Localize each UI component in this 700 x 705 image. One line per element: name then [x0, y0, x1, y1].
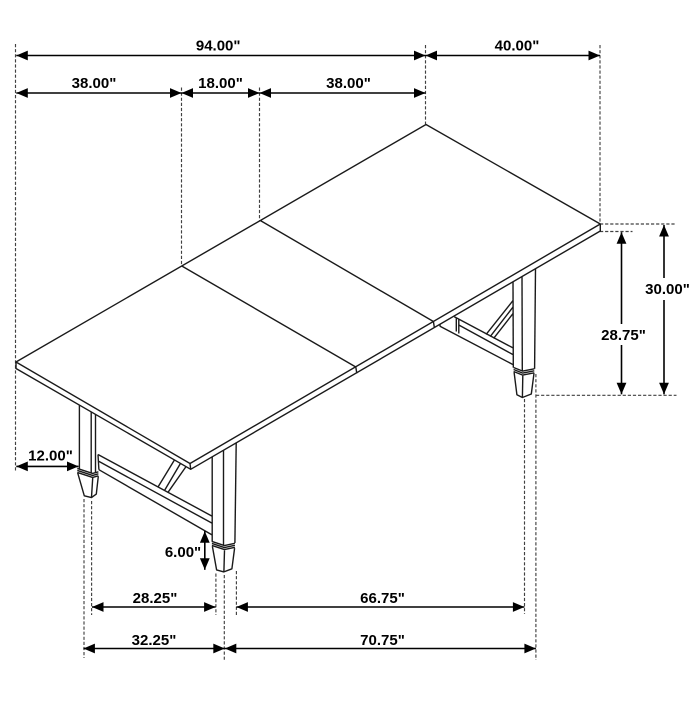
- svg-text:28.75": 28.75": [601, 327, 646, 344]
- svg-text:18.00": 18.00": [198, 75, 243, 92]
- svg-text:32.25": 32.25": [132, 632, 177, 649]
- svg-text:30.00": 30.00": [645, 281, 690, 298]
- svg-text:70.75": 70.75": [360, 632, 405, 649]
- svg-text:38.00": 38.00": [326, 75, 371, 92]
- svg-text:6.00": 6.00": [165, 544, 201, 561]
- svg-text:40.00": 40.00": [495, 38, 540, 55]
- svg-text:94.00": 94.00": [196, 38, 241, 55]
- svg-text:12.00": 12.00": [28, 448, 73, 465]
- svg-text:66.75": 66.75": [360, 590, 405, 607]
- svg-text:38.00": 38.00": [72, 75, 117, 92]
- svg-text:28.25": 28.25": [133, 590, 178, 607]
